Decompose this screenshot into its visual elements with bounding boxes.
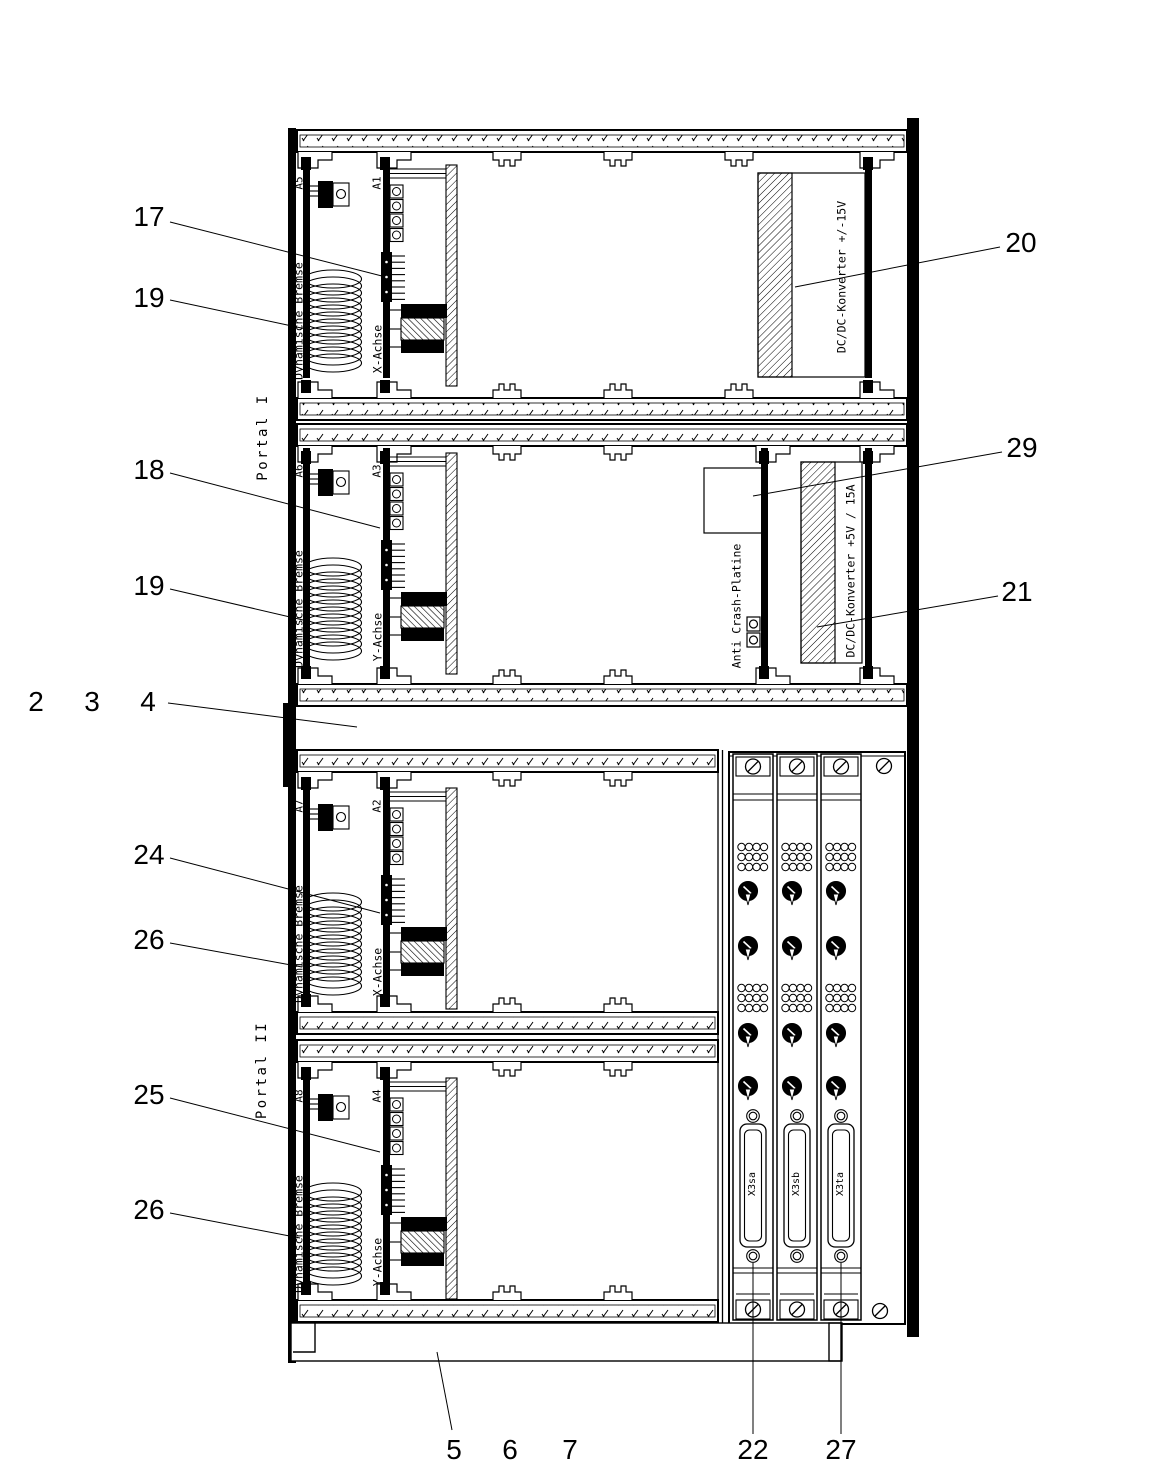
ref-19-lower: 19 — [133, 572, 164, 600]
label-dynamische-bremse-s4: Dynamische Bremse — [293, 1175, 305, 1293]
label-dynamische-bremse-s3: Dynamische Bremse — [293, 885, 305, 1003]
ref-7: 7 — [562, 1436, 578, 1464]
ref-17: 17 — [133, 203, 164, 231]
ref-29: 29 — [1006, 434, 1037, 462]
technical-drawing: 2 3 4 17 19 18 19 24 26 25 26 20 29 21 5… — [0, 0, 1152, 1468]
label-anti-crash: Anti Crash-Platine — [731, 544, 743, 669]
card-label-a2: A2 — [372, 799, 383, 812]
card-label-a4: A4 — [372, 1089, 383, 1102]
ref-20: 20 — [1005, 229, 1036, 257]
drawing-linework — [0, 0, 1152, 1468]
label-x-achse-s3: X-Achse — [372, 948, 384, 996]
ref-27: 27 — [825, 1436, 856, 1464]
ref-21: 21 — [1001, 578, 1032, 606]
label-dcdc-5v: DC/DC-Konverter +5V / 15A — [845, 484, 857, 657]
ref-2: 2 — [28, 688, 44, 716]
card-label-a3: A3 — [372, 464, 383, 477]
ref-3: 3 — [84, 688, 100, 716]
card-label-a6: A6 — [294, 464, 305, 477]
label-x-achse-s1: X-Achse — [372, 325, 384, 373]
ref-24: 24 — [133, 841, 164, 869]
ref-25: 25 — [133, 1081, 164, 1109]
ref-26-upper: 26 — [133, 926, 164, 954]
connector-label-x3sb: X3sb — [792, 1172, 802, 1196]
label-portal-1: Portal I — [256, 393, 270, 480]
label-dynamische-bremse-s1: Dynamische Bremse — [293, 262, 305, 380]
label-y-achse-s2: Y-Achse — [372, 613, 384, 661]
label-dynamische-bremse-s2: Dynamische Bremse — [293, 550, 305, 668]
ref-22: 22 — [737, 1436, 768, 1464]
card-label-a8: A8 — [294, 1089, 305, 1102]
card-label-a5: A5 — [294, 176, 305, 189]
label-dcdc-15v: DC/DC-Konverter +/-15V — [836, 201, 848, 353]
ref-19-upper: 19 — [133, 284, 164, 312]
ref-18: 18 — [133, 456, 164, 484]
card-label-a1: A1 — [372, 176, 383, 189]
ref-26-lower: 26 — [133, 1196, 164, 1224]
connector-label-x3sa: X3sa — [748, 1172, 758, 1196]
ref-5: 5 — [446, 1436, 462, 1464]
label-portal-2: Portal II — [255, 1021, 269, 1119]
ref-4: 4 — [140, 688, 156, 716]
connector-label-x3ta: X3ta — [836, 1172, 846, 1196]
card-label-a7: A7 — [294, 799, 305, 812]
label-y-achse-s4: Y-Achse — [372, 1238, 384, 1286]
ref-6: 6 — [502, 1436, 518, 1464]
